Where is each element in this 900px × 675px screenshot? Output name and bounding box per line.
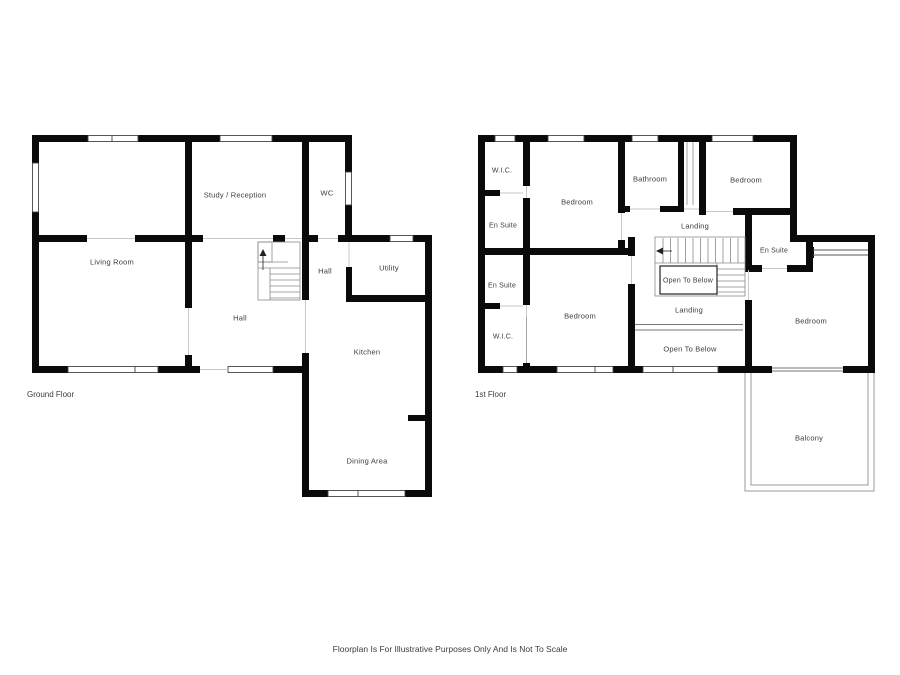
- room-label-dining-area: Dining Area: [347, 457, 388, 466]
- room-label-balcony: Balcony: [795, 434, 823, 443]
- room-label-wc: WC: [321, 189, 334, 198]
- room-label-open-to-below-stairs: Open To Below: [663, 278, 713, 285]
- room-label-kitchen: Kitchen: [354, 348, 380, 357]
- room-label-bedroom-right: Bedroom: [795, 317, 827, 326]
- room-label-living-room: Living Room: [90, 258, 134, 267]
- floorplan-drawing: [0, 0, 900, 675]
- first-floor-walls: [478, 135, 875, 373]
- room-label-wic-bottom: W.I.C.: [493, 334, 513, 341]
- floor-name-ground: Ground Floor: [27, 390, 74, 399]
- room-label-en-suite-left-1: En Suite: [489, 223, 517, 230]
- room-label-en-suite-right: En Suite: [760, 248, 788, 255]
- ground-floor-stairs: [258, 242, 300, 300]
- floorplan-canvas: Study / Reception WC Living Room Hall Ut…: [0, 0, 900, 675]
- room-label-landing-lower: Landing: [675, 306, 703, 315]
- room-label-bathroom: Bathroom: [633, 175, 667, 184]
- room-label-bedroom-top-right: Bedroom: [730, 176, 762, 185]
- room-label-bedroom-bottom-left: Bedroom: [564, 312, 596, 321]
- ground-floor-walls: [32, 135, 432, 497]
- balcony-outline: [745, 373, 874, 491]
- room-label-hall-right: Hall: [318, 267, 332, 276]
- ground-floor-plan: [32, 135, 432, 497]
- room-label-wic-top: W.I.C.: [492, 168, 512, 175]
- disclaimer-text: Floorplan Is For Illustrative Purposes O…: [333, 644, 568, 654]
- room-label-landing-upper: Landing: [681, 222, 709, 231]
- floor-name-first: 1st Floor: [475, 390, 506, 399]
- room-label-hall-center: Hall: [233, 314, 247, 323]
- room-label-open-to-below-lower: Open To Below: [663, 345, 716, 354]
- room-label-utility: Utility: [379, 264, 399, 273]
- first-floor-partition-lines: [527, 142, 869, 371]
- room-label-en-suite-left-2: En Suite: [488, 283, 516, 290]
- room-label-study-reception: Study / Reception: [204, 191, 267, 200]
- room-label-bedroom-top-left: Bedroom: [561, 198, 593, 207]
